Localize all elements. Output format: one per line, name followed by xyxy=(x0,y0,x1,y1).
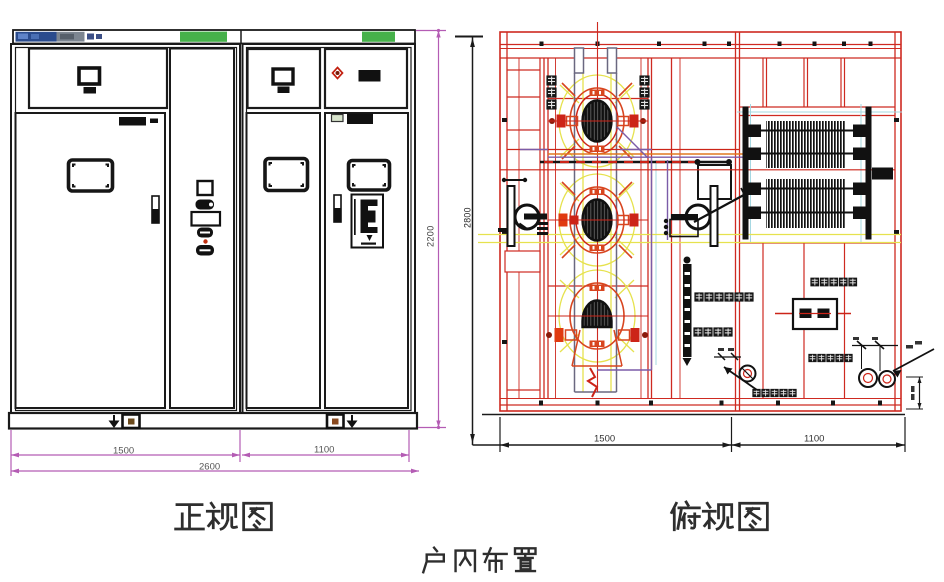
svg-text:1500: 1500 xyxy=(113,446,134,457)
svg-text:2800: 2800 xyxy=(463,207,473,228)
svg-text:2600: 2600 xyxy=(199,462,220,473)
svg-text:1100: 1100 xyxy=(314,445,334,456)
svg-text:1100: 1100 xyxy=(804,434,824,445)
svg-text:2200: 2200 xyxy=(426,225,436,247)
svg-text:1500: 1500 xyxy=(594,434,615,445)
